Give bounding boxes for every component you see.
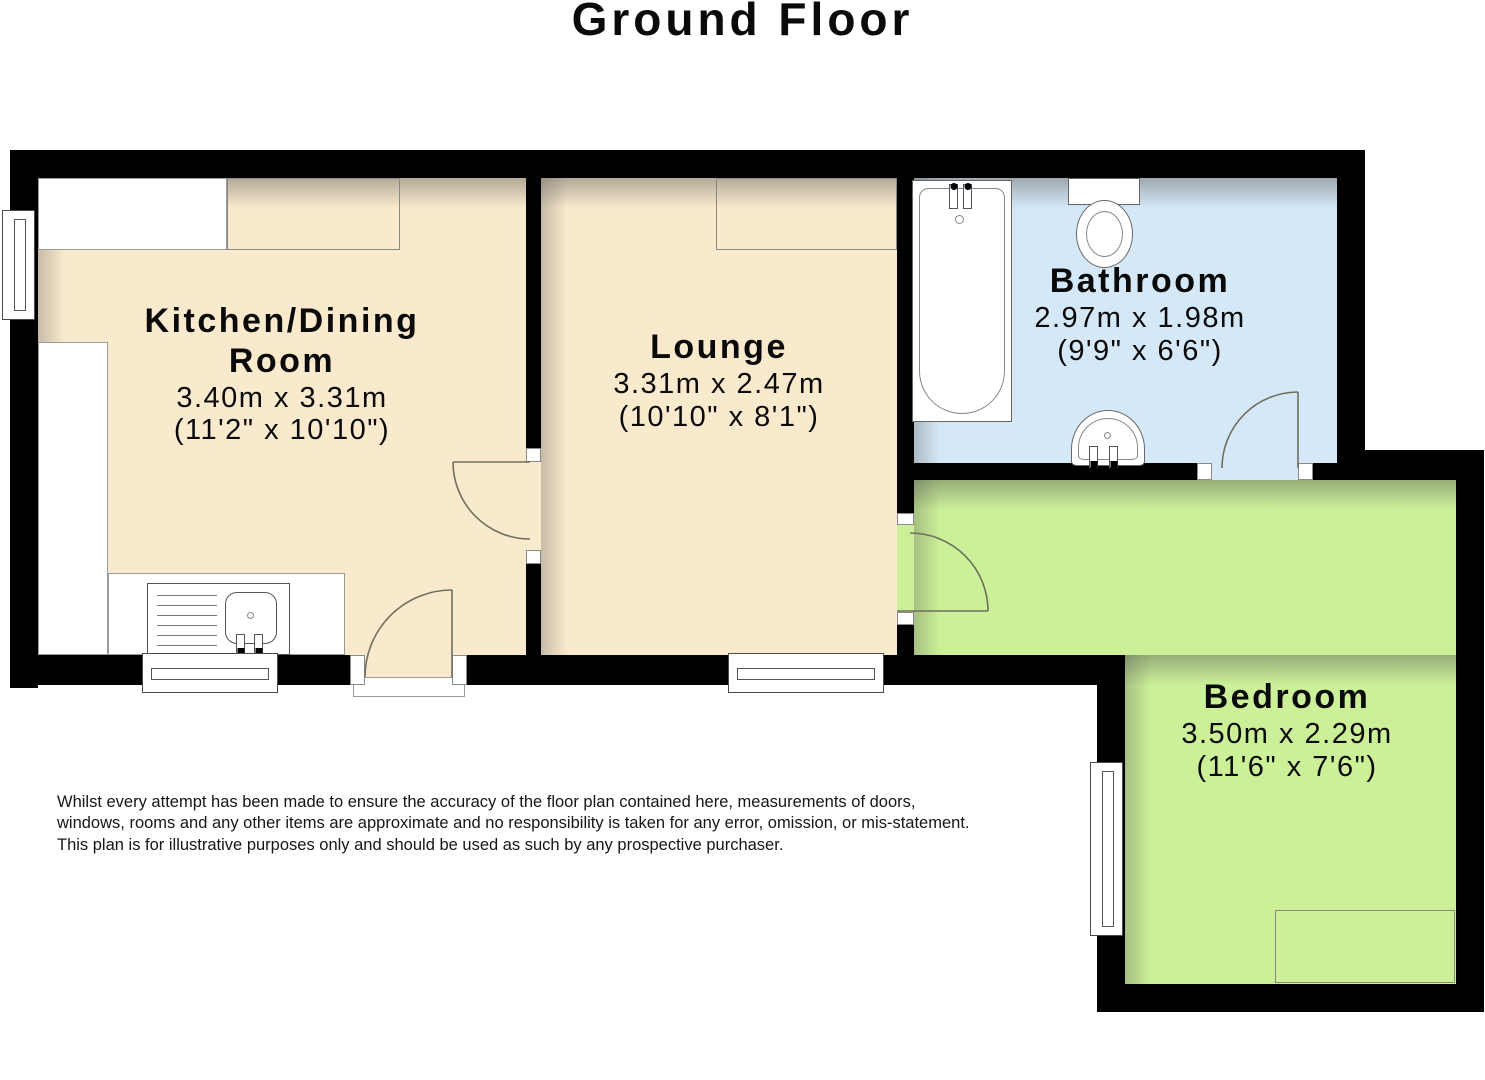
bedroom-label: Bedroom 3.50m x 2.29m (11'6" x 7'6") bbox=[1107, 678, 1467, 783]
wall-lounge-east-lower bbox=[897, 625, 914, 655]
bathroom-dims-imperial: (9'9" x 6'6") bbox=[960, 335, 1320, 368]
floor-plan: Ground Floor bbox=[0, 0, 1485, 1080]
disclaimer: Whilst every attempt has been made to en… bbox=[57, 792, 970, 856]
window-glass bbox=[1102, 771, 1114, 927]
lounge-dims-metric: 3.31m x 2.47m bbox=[539, 368, 899, 401]
kitchen-counter-top bbox=[38, 178, 227, 250]
window-glass bbox=[14, 219, 26, 311]
window-glass bbox=[151, 668, 269, 680]
basin-tap bbox=[1089, 446, 1098, 468]
kitchen-label: Kitchen/Dining Room 3.40m x 3.31m (11'2"… bbox=[102, 302, 462, 447]
lounge-name: Lounge bbox=[539, 328, 899, 368]
bedroom-furniture-outline bbox=[1275, 910, 1455, 983]
lounge-label: Lounge 3.31m x 2.47m (10'10" x 8'1") bbox=[539, 328, 899, 433]
wall-top bbox=[10, 150, 1365, 178]
door-jamb bbox=[526, 550, 541, 564]
doorway-lounge-bedroom bbox=[897, 525, 914, 612]
kitchen-counter-left bbox=[38, 342, 108, 655]
wall-bathroom-right bbox=[1337, 150, 1365, 480]
lounge-dims-imperial: (10'10" x 8'1") bbox=[539, 401, 899, 434]
kitchen-sink-tap bbox=[254, 634, 263, 655]
disclaimer-line: windows, rooms and any other items are a… bbox=[57, 813, 970, 834]
bedroom-dims-metric: 3.50m x 2.29m bbox=[1107, 718, 1467, 751]
kitchen-sink-drainer bbox=[157, 595, 217, 647]
bathtub-tap bbox=[963, 184, 972, 209]
doorway-kitchen-lounge bbox=[526, 462, 541, 550]
window-glass bbox=[737, 668, 875, 680]
lounge-unit-outline-top bbox=[716, 178, 897, 250]
kitchen-sink-tap bbox=[236, 634, 245, 655]
kitchen-unit-outline-top bbox=[227, 178, 400, 250]
kitchen-window-left bbox=[2, 210, 35, 320]
wall-bedroom-bottom bbox=[1097, 984, 1484, 1012]
door-jamb bbox=[897, 513, 914, 525]
kitchen-name: Kitchen/Dining Room bbox=[102, 302, 462, 382]
bathroom-name: Bathroom bbox=[960, 262, 1320, 302]
bathroom-label: Bathroom 2.97m x 1.98m (9'9" x 6'6") bbox=[960, 262, 1320, 367]
basin-tap bbox=[1109, 446, 1118, 468]
bedroom-name: Bedroom bbox=[1107, 678, 1467, 718]
kitchen-window-bottom bbox=[142, 653, 278, 693]
door-jamb bbox=[897, 612, 914, 625]
wall-shadow bbox=[914, 480, 1456, 655]
door-jamb bbox=[1197, 463, 1212, 480]
door-threshold bbox=[353, 677, 465, 697]
wall-bathroom-bottom bbox=[897, 463, 1197, 480]
toilet-bowl-inner bbox=[1086, 211, 1123, 257]
door-jamb bbox=[350, 655, 365, 685]
bathroom-dims-metric: 2.97m x 1.98m bbox=[960, 302, 1320, 335]
kitchen-sink-plughole bbox=[247, 612, 254, 619]
bedroom-dims-imperial: (11'6" x 7'6") bbox=[1107, 751, 1467, 784]
kitchen-dims-metric: 3.40m x 3.31m bbox=[102, 382, 462, 415]
lounge-window-bottom bbox=[728, 653, 884, 693]
door-jamb bbox=[526, 448, 541, 462]
door-jamb bbox=[1298, 463, 1313, 480]
bedroom-floor-upper bbox=[914, 480, 1456, 655]
disclaimer-line: This plan is for illustrative purposes o… bbox=[57, 835, 970, 856]
disclaimer-line: Whilst every attempt has been made to en… bbox=[57, 792, 970, 813]
kitchen-dims-imperial: (11'2" x 10'10") bbox=[102, 414, 462, 447]
basin-plughole bbox=[1104, 432, 1111, 439]
wall-kitchen-lounge-lower bbox=[526, 564, 541, 655]
bathtub-tap bbox=[949, 184, 958, 209]
bathtub-plughole bbox=[955, 215, 964, 224]
page-title: Ground Floor bbox=[0, 0, 1485, 46]
doorway-bathroom bbox=[1212, 463, 1298, 480]
door-jamb bbox=[452, 655, 467, 685]
bedroom-window-left bbox=[1090, 762, 1123, 936]
